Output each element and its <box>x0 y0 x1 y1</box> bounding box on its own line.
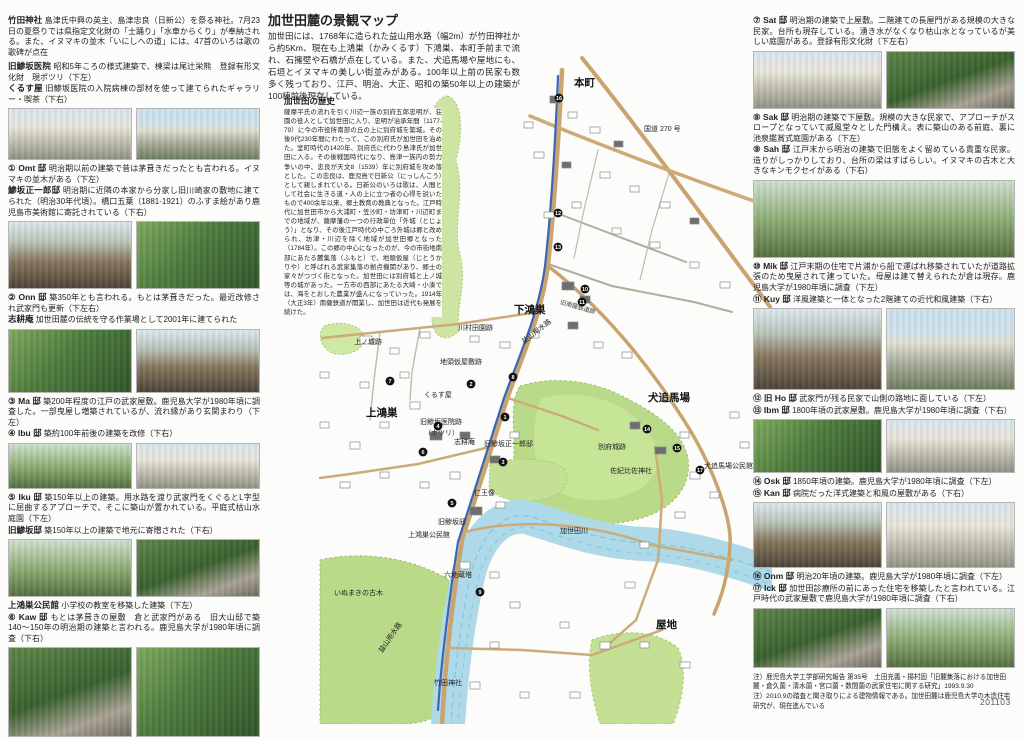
entry-iku: ⑤ Iku 邸 築150年以上の建築。用水路を渡り武家門をくぐるとL字型に屈曲す… <box>8 492 260 536</box>
photo-thumbnail <box>8 108 132 160</box>
map-title: 加世田麓の景観マップ <box>268 10 528 29</box>
entry-ibu: Ibu 邸 <box>18 428 42 438</box>
photo-thumbnail <box>753 51 882 109</box>
map-label: 別府城跡 <box>598 442 626 451</box>
photo-thumbnail <box>753 502 882 568</box>
map-label: 犬追馬場公民館 <box>704 461 753 470</box>
svg-text:16: 16 <box>556 96 562 102</box>
map-marker-16: 16 <box>555 94 564 103</box>
photo-thumbnail <box>136 108 260 160</box>
entry-ibm: Ibm 邸 <box>764 405 790 415</box>
map-label: 下鴻巣 <box>514 303 546 316</box>
photo-thumbnail <box>753 608 882 668</box>
map-label: 旧鯵坂正一郎邸 <box>484 439 533 448</box>
footnotes: 注）鹿児島大学工学部研究報告 第35号 土田充義・揚村固「旧麓集落における加世田… <box>753 673 1015 711</box>
entry-sak: ⑧ Sak 邸 明治期の建築で下屋敷。規模の大きな民家で、アプローチがスロープと… <box>753 112 1015 177</box>
entry-ajisaka-clinic: 旧鯵坂医院 昭和5年ころの様式建築で、棟梁は尾辻栄熊 登録有形文化財 現ポツリ（… <box>8 61 260 105</box>
map-label: いぬまきの古木 <box>334 588 383 597</box>
map-label: 上ノ城跡 <box>354 337 382 346</box>
map-label: 仁王像 <box>474 488 495 497</box>
svg-text:10: 10 <box>582 287 588 293</box>
entry-ma: ③ Ma 邸 築200年程度の江戸の武家屋敷。鹿児島大学が1980年頃に調査した… <box>8 396 260 440</box>
photo-thumbnail <box>886 502 1015 568</box>
map-label: くるす屋 <box>424 391 452 399</box>
map-label: 本町 <box>574 76 595 89</box>
photo-row <box>753 502 1015 568</box>
photo-thumbnail <box>886 419 1015 473</box>
map-marker-10: 10 <box>581 285 590 294</box>
map-marker-4: 4 <box>434 422 443 431</box>
photo-row <box>753 308 1015 390</box>
svg-text:15: 15 <box>674 446 680 452</box>
svg-text:2: 2 <box>469 382 472 388</box>
history-paragraph: 薩摩平氏の流れを引く川辺一族の別府五郎忠明が、荘園の役人として加世田に入り、忠明… <box>284 108 442 317</box>
svg-text:11: 11 <box>579 300 585 306</box>
map-label: 屋地 <box>656 618 677 631</box>
entry-kan: Kan 邸 <box>764 488 791 498</box>
map-marker-17: 17 <box>696 466 705 475</box>
map-label: 加世田川 <box>560 526 588 535</box>
photo-thumbnail <box>136 329 260 393</box>
photo-thumbnail <box>8 539 132 597</box>
photo-thumbnail <box>753 419 882 473</box>
photo-thumbnail <box>886 608 1015 668</box>
map-marker-12: 12 <box>554 209 563 218</box>
map-marker-7: 7 <box>386 377 395 386</box>
photo-thumbnail <box>8 443 132 489</box>
photo-row <box>8 108 260 160</box>
map-label: 国道 270 号 <box>644 124 681 133</box>
map-marker-11: 11 <box>578 298 587 307</box>
map-label: 犬追馬場 <box>647 391 690 404</box>
svg-text:3: 3 <box>501 460 504 466</box>
map-marker-1: 1 <box>501 413 510 422</box>
entry-sah: Sah 邸 <box>763 144 790 154</box>
map-label: 旧鯵坂邸 <box>438 517 466 526</box>
photo-row <box>753 608 1015 668</box>
map-marker-8: 8 <box>509 373 518 382</box>
svg-text:6: 6 <box>421 450 424 456</box>
photo-row <box>753 51 1015 109</box>
svg-text:1: 1 <box>503 415 506 421</box>
entry-onm: ⑯ Onm 邸 明治20年頃の建築。鹿児島大学が1980年頃に調査（下左） ⑰ … <box>753 571 1015 605</box>
entry-onn: ② Onn 邸 築350年とも言われる。もとは茅葺きだった。最近改修され武家門も… <box>8 292 260 326</box>
entry-omt: ① Omt 邸 明治期以前の建築で昔は茅葺きだったとも言われる。イヌマキの並木が… <box>8 163 260 218</box>
entry-shikoan: 志耕庵 <box>8 314 34 324</box>
entry-kurusuya: くるす屋 <box>8 83 43 93</box>
photo-thumbnail <box>753 308 882 390</box>
map-label: 上鴻巣 <box>366 406 398 419</box>
footnote-reference: 注）鹿児島大学工学部研究報告 第35号 土田充義・揚村固「旧麓集落における加世田… <box>753 673 1015 692</box>
photo-row <box>753 419 1015 473</box>
map-marker-14: 14 <box>643 425 652 434</box>
photo-row <box>8 221 260 289</box>
photo-thumbnail <box>136 221 260 289</box>
history-heading: 加世田の歴史 <box>284 95 335 107</box>
photo-row <box>8 443 260 489</box>
photo-thumbnail <box>886 51 1015 109</box>
map-label: （ポツリ） <box>424 429 459 437</box>
photo-thumbnail <box>886 308 1015 390</box>
map-marker-2: 2 <box>467 380 476 389</box>
map-label: 地頭仮屋敷跡 <box>440 357 482 366</box>
map-marker-6: 6 <box>419 448 428 457</box>
photo-row <box>8 539 260 597</box>
svg-text:14: 14 <box>644 427 651 433</box>
svg-text:7: 7 <box>388 379 391 385</box>
entry-ajisaka-seiichiro: 鯵坂正一郎邸 <box>8 185 60 195</box>
entry-kuy: Kuy 邸 <box>764 294 791 304</box>
svg-text:12: 12 <box>555 211 561 217</box>
entry-sat: ⑦ Sat 邸 明治期の建築で上屋敷。二階建ての長屋門がある規模の大きな民家。台… <box>753 15 1015 48</box>
entry-kaminokurusu-hall: 上鴻巣公民館 小学校の教室を移築した建築（下左） ⑥ Kaw 邸 もとは茅葺きの… <box>8 600 260 644</box>
photo-thumbnail <box>136 539 260 597</box>
entry-old-ajisaka: 旧鯵坂邸 <box>8 525 42 535</box>
svg-text:5: 5 <box>450 501 453 507</box>
photo-thumbnail <box>753 180 1015 258</box>
map-marker-13: 13 <box>554 243 563 252</box>
map-marker-3: 3 <box>499 458 508 467</box>
left-column: 竹田神社 島津氏中興の英主、島津忠良（日新公）を祭る神社。7月23日の夏祭りでは… <box>8 0 260 740</box>
document-number: 201103 <box>980 697 1011 707</box>
svg-text:13: 13 <box>555 245 561 251</box>
map-label: 志耕庵 <box>454 437 475 446</box>
svg-text:17: 17 <box>697 468 703 474</box>
svg-text:9: 9 <box>478 590 481 596</box>
footnote-survey: 注）2010.9の踏査と聞き取りによる建物情報である。加世田麓は鹿児島大学の木造… <box>753 692 1015 711</box>
map-label: 佐紀比佐神社 <box>610 466 652 475</box>
entry-mik: ⑩ Mik 邸 江戸末期の住宅で片浦から船で運ばれ移築されていたが道路拡張のため… <box>753 261 1015 305</box>
map-marker-15: 15 <box>673 444 682 453</box>
right-column: ⑦ Sat 邸 明治期の建築で上屋敷。二階建ての長屋門がある規模の大きな民家。台… <box>753 0 1015 711</box>
entry-ho: ⑫ 旧 Ho 邸 武家門が残る民家で山側の路地に面している（下左） ⑬ Ibm … <box>753 393 1015 416</box>
photo-row <box>8 329 260 393</box>
map-label: 竹田神社 <box>434 678 462 687</box>
map-intro-paragraph: 加世田には、1768年に造られた益山用水路（幅2m）が竹田神社から約5Km、現在… <box>268 30 520 102</box>
map-marker-9: 9 <box>476 588 485 597</box>
photo-thumbnail <box>8 329 132 393</box>
svg-text:8: 8 <box>511 375 514 381</box>
entry-takeda-shrine: 竹田神社 島津氏中興の英主、島津忠良（日新公）を祭る神社。7月23日の夏祭りでは… <box>8 15 260 58</box>
photo-thumbnail <box>8 221 132 289</box>
entry-kaw: Kaw 邸 <box>19 612 48 622</box>
map-label: 六地蔵塔 <box>444 570 472 579</box>
map-label: 川村田園跡 <box>458 323 493 332</box>
photo-row <box>753 180 1015 258</box>
photo-thumbnail <box>136 443 260 489</box>
map-marker-5: 5 <box>448 499 457 508</box>
map-label: 上鴻巣公民館 <box>408 530 450 539</box>
entry-osk: ⑭ Osk 邸 1850年頃の建築。鹿児島大学が1980年頃に調査（下左） ⑮ … <box>753 476 1015 499</box>
entry-ick: Ick 邸 <box>764 583 787 593</box>
